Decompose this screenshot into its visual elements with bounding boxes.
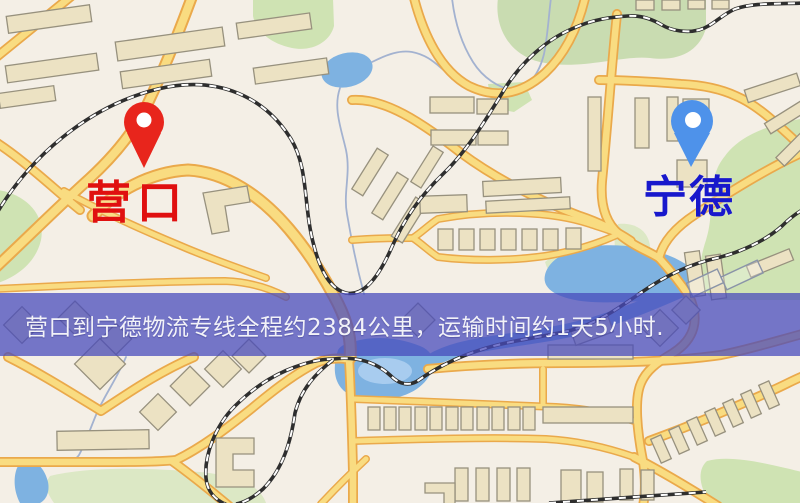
route-info-text: 营口到宁德物流专线全程约2384公里，运输时间约1天5小时. <box>0 308 664 342</box>
destination-city-label: 宁德 <box>643 176 735 220</box>
route-info-banner: 营口到宁德物流专线全程约2384公里，运输时间约1天5小时. <box>0 293 800 356</box>
origin-pin-icon[interactable] <box>118 96 172 174</box>
building-footprints <box>0 0 800 503</box>
map-screenshot: 营口 宁德 营口到宁德物流专线全程约2384公里，运输时间约1天5小时. <box>0 0 800 503</box>
map-canvas[interactable] <box>0 0 800 503</box>
destination-pin-icon[interactable] <box>665 94 721 174</box>
origin-city-label: 营口 <box>86 180 188 225</box>
